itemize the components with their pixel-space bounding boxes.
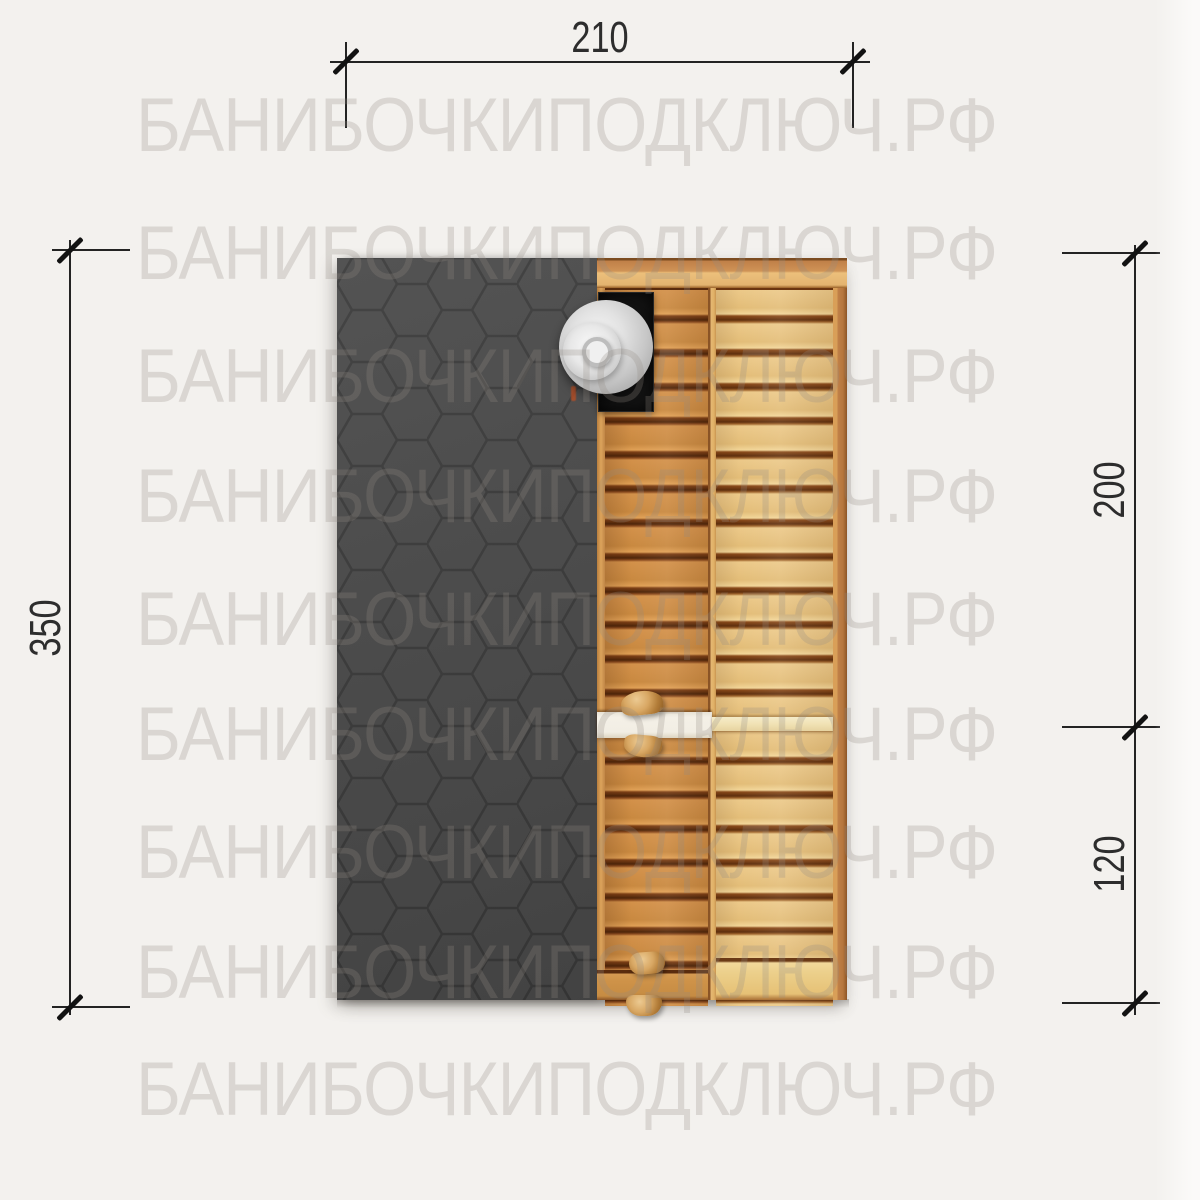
- extension-line: [345, 42, 347, 128]
- white-strip-door: [597, 712, 712, 738]
- chimney-cap-icon: [559, 300, 653, 394]
- dimension-label-top: 210: [571, 13, 628, 63]
- dimension-label-right-lower: 120: [1085, 835, 1135, 892]
- page-edge-fade: [1155, 0, 1200, 1200]
- bench-plank-column: [716, 284, 833, 1006]
- chimney-cap-hub: [582, 337, 612, 367]
- shingle-shading: [337, 258, 597, 1000]
- dimension-label-right-upper: 200: [1085, 461, 1135, 518]
- white-strip-bench: [712, 717, 833, 731]
- bench-bottom-beam: [716, 958, 833, 1000]
- extension-line: [852, 42, 854, 128]
- dimension-line: [1134, 245, 1136, 1015]
- extension-line: [1062, 726, 1160, 728]
- drawing-canvas: 210 350 200 120: [0, 0, 1200, 1200]
- wood-top-beam: [597, 258, 847, 288]
- extension-line: [1062, 1002, 1160, 1004]
- watermark-text: БАНИБОЧКИПОДКЛЮЧ.РФ: [136, 1052, 997, 1128]
- bottom-handle-lower: [626, 995, 662, 1016]
- wood-right-frame: [833, 258, 847, 1000]
- extension-line: [1062, 252, 1160, 254]
- extension-line: [52, 249, 130, 251]
- plank-divider: [708, 284, 716, 1000]
- extension-line: [52, 1006, 130, 1008]
- bottom-handle-upper: [628, 951, 665, 975]
- sauna-top-view: [337, 258, 847, 1000]
- dimension-label-left: 350: [21, 599, 71, 656]
- watermark-text: БАНИБОЧКИПОДКЛЮЧ.РФ: [136, 88, 997, 164]
- rust-mark: [571, 386, 576, 401]
